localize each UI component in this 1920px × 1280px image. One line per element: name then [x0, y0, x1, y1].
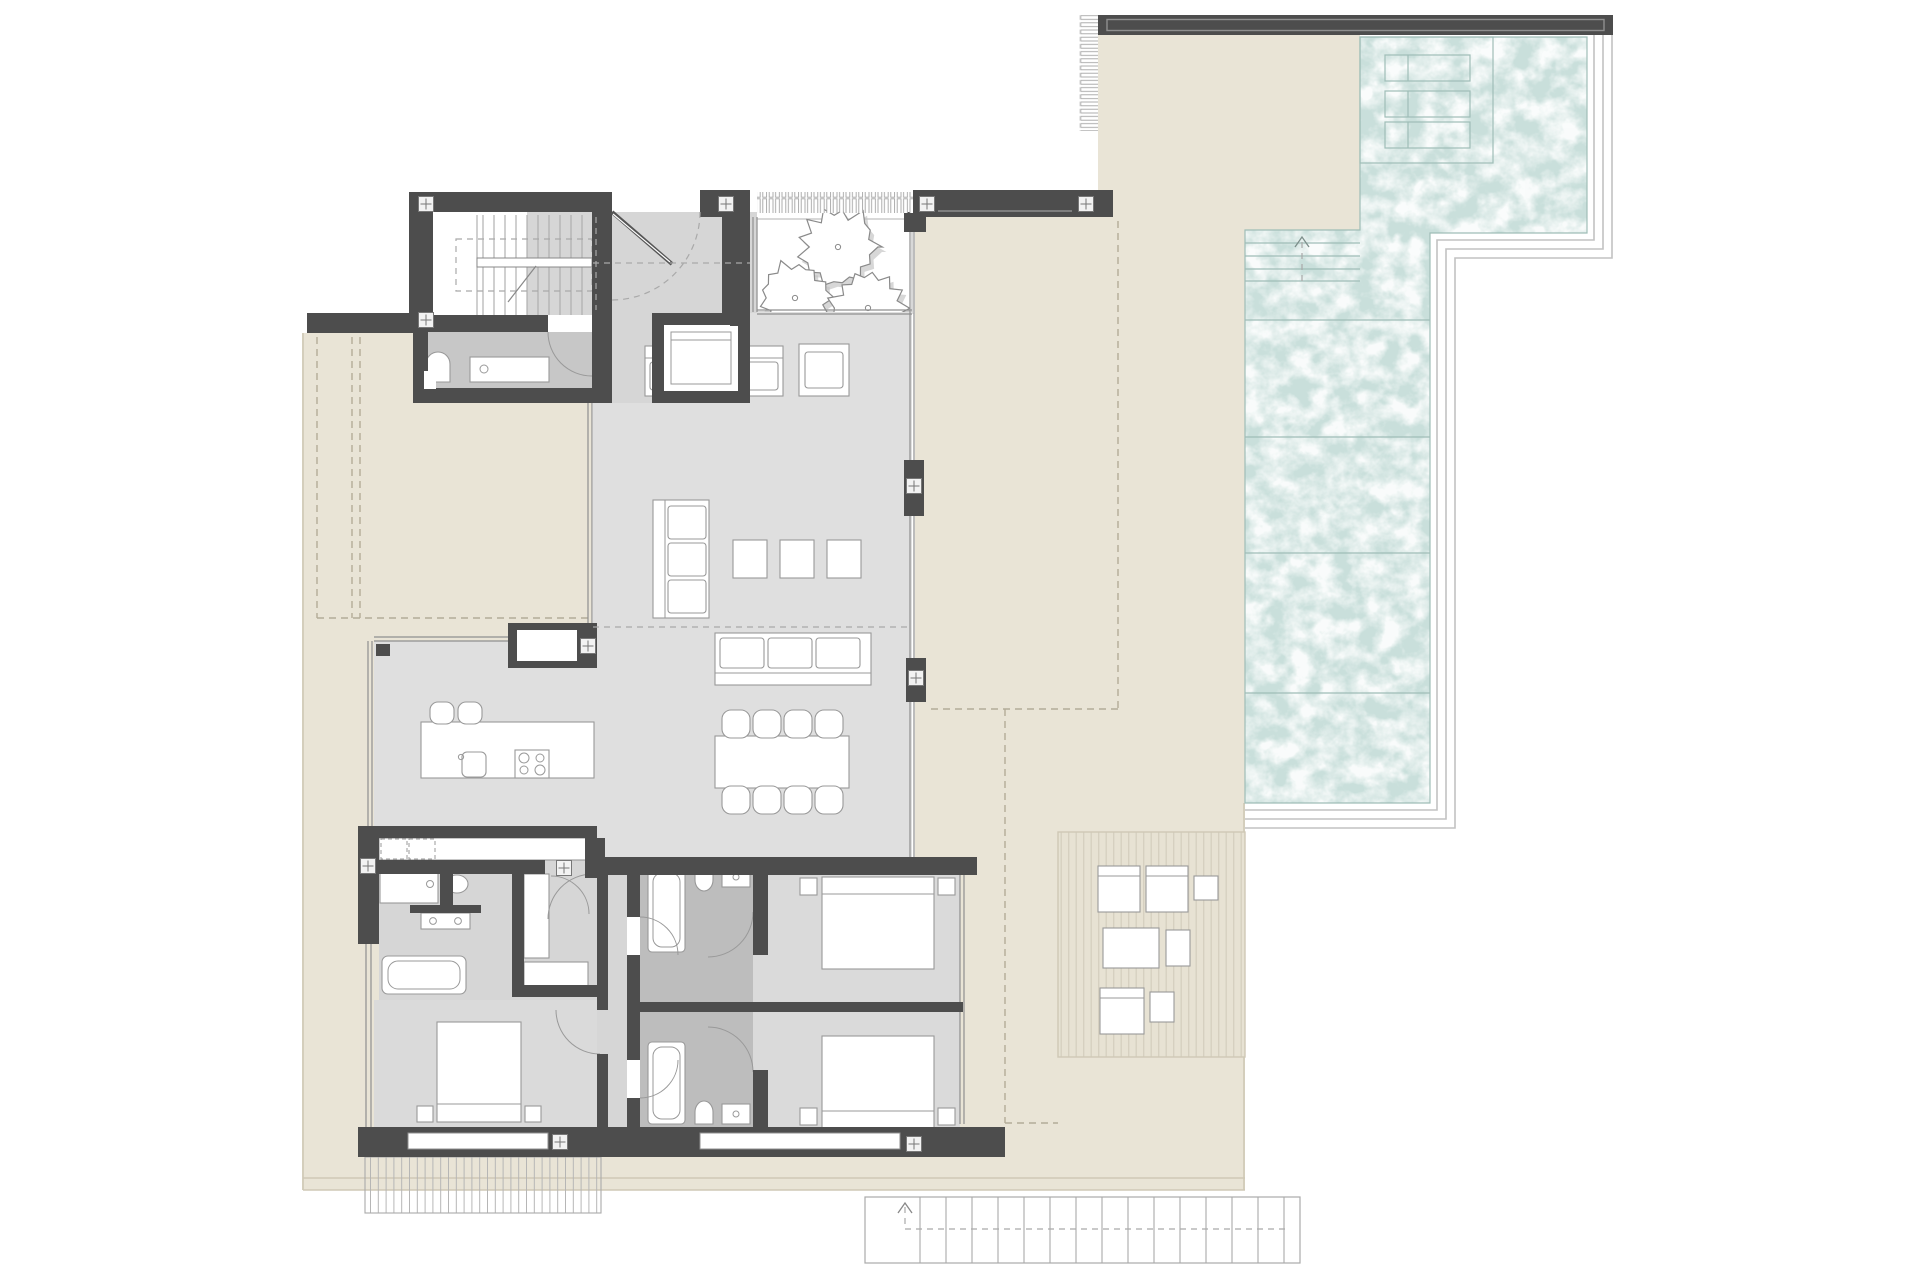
nightstand-icon [938, 1108, 955, 1125]
window-marker-icon [581, 639, 596, 654]
bed-icon [822, 877, 934, 969]
wall-niche [424, 371, 436, 389]
vanity-icon [421, 913, 470, 929]
window-marker-icon [1079, 197, 1094, 212]
nightstand-icon [800, 878, 817, 895]
exterior-staircase [865, 1197, 1300, 1263]
deck-chair-icon [1098, 866, 1140, 912]
nightstand-icon [525, 1106, 541, 1122]
washbasin-icon [722, 1104, 750, 1124]
window-marker-icon [719, 197, 734, 212]
wardrobe-counter [379, 838, 592, 860]
bar-stool-icon [430, 702, 454, 724]
side-table-icon [733, 540, 767, 578]
window-marker-icon [419, 197, 434, 212]
kitchen-island [421, 722, 594, 778]
window-marker-icon [419, 313, 434, 328]
pool-terrace [1098, 35, 1360, 217]
deck-side-table-icon [1166, 930, 1190, 966]
column-icon [730, 312, 744, 326]
lower-balcony-stairs [365, 1157, 601, 1213]
window-marker-icon [907, 479, 922, 494]
floor-plan-canvas [0, 0, 1920, 1280]
pool-side-strip [1245, 217, 1360, 230]
window-band [700, 1133, 900, 1149]
pergola-slats [757, 15, 1098, 213]
south-terrace-strip [592, 1157, 915, 1190]
nightstand-icon [800, 1108, 817, 1125]
deck-side-table-icon [1150, 992, 1174, 1022]
window-marker-icon [361, 859, 376, 874]
floor-plan-drawing [0, 0, 1920, 1280]
deck-chair-icon [1100, 988, 1144, 1034]
side-table-icon [827, 540, 861, 578]
deck-table-icon [1103, 928, 1159, 968]
column-icon [376, 644, 390, 656]
wood-deck-lounge [1058, 832, 1245, 1057]
bar-stool-icon [458, 702, 482, 724]
window-marker-icon [907, 1137, 922, 1152]
bed-icon [437, 1022, 521, 1122]
closet-icon [524, 962, 588, 988]
nightstand-icon [417, 1106, 433, 1122]
deck-side-table-icon [1194, 876, 1218, 900]
pergola-slats-courtyard [757, 192, 913, 213]
window-marker-icon [909, 671, 924, 686]
closet-icon [524, 874, 549, 958]
pergola-slats-pool [1079, 15, 1098, 131]
door-opening [548, 315, 592, 332]
washbasin-counter [470, 357, 549, 382]
bed-icon [822, 1036, 934, 1128]
dining-table-icon [715, 736, 849, 788]
window-marker-icon [920, 197, 935, 212]
pool-terrace-wall [1098, 15, 1613, 35]
toilet-icon [695, 1101, 713, 1124]
deck-chair-icon [1146, 866, 1188, 912]
window-band [408, 1133, 548, 1149]
sink-icon [462, 752, 486, 777]
side-table-icon [780, 540, 814, 578]
nightstand-icon [938, 878, 955, 895]
window-marker-icon [553, 1135, 568, 1150]
window-marker-icon [557, 861, 572, 876]
stair-railing [477, 258, 592, 267]
